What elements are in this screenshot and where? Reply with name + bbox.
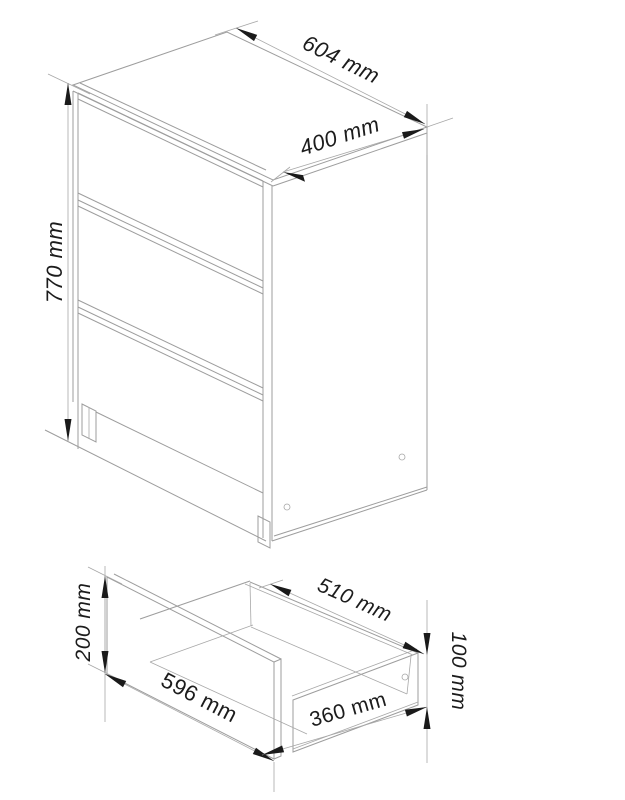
dim-inner-length-510: 510 mm: [270, 574, 424, 654]
dim-depth-400: 400 mm: [283, 111, 424, 181]
arrowhead: [402, 129, 424, 139]
screw-hole: [402, 674, 408, 680]
arrowhead: [65, 419, 72, 441]
dresser-top-face: [73, 32, 427, 180]
arrowhead: [105, 674, 126, 687]
dresser-side-bottom-edge: [272, 490, 427, 541]
arrowhead: [404, 111, 425, 124]
dim-label-front-width: 596 mm: [157, 667, 242, 727]
arrowhead: [424, 707, 431, 729]
drawer-front-panel: [107, 577, 274, 759]
dim-label-side-height: 100 mm: [447, 632, 470, 711]
drawer-side-top-inner: [292, 649, 417, 696]
dresser-top-inset-edge: [80, 83, 266, 170]
arrowhead: [236, 28, 257, 41]
furniture-dimension-diagram: 770 mm 604 mm 400 mm: [0, 0, 625, 800]
dim-height-770: 770 mm: [42, 83, 72, 441]
dresser-right-leg: [258, 516, 270, 548]
dim-label-height: 770 mm: [42, 221, 67, 303]
technical-drawing: 770 mm 604 mm 400 mm: [0, 0, 625, 800]
drawer-view: 200 mm 596 mm 510 mm 100 mm 360 mm: [72, 566, 470, 792]
screw-hole: [399, 454, 405, 460]
dim-side-length-360: 360 mm: [262, 688, 427, 755]
dresser-view: 770 mm 604 mm 400 mm: [42, 21, 453, 548]
dim-front-width-596: 596 mm: [105, 667, 274, 761]
drawer-front-right-inner: [274, 659, 281, 759]
dim-label-front-height: 200 mm: [72, 583, 95, 663]
dresser-side-bottom-inner: [274, 487, 427, 536]
dim-side-height-100: 100 mm: [424, 632, 471, 729]
screw-hole: [284, 504, 290, 510]
dim-front-height-200: 200 mm: [72, 576, 109, 673]
arrowhead: [65, 83, 72, 105]
dim-width-604: 604 mm: [236, 28, 425, 124]
dim-label-side-length: 360 mm: [307, 688, 389, 732]
drawer-front-top-inner: [114, 574, 281, 659]
arrowhead: [283, 172, 305, 182]
arrowhead: [424, 633, 431, 655]
dim-label-width: 604 mm: [299, 30, 384, 89]
